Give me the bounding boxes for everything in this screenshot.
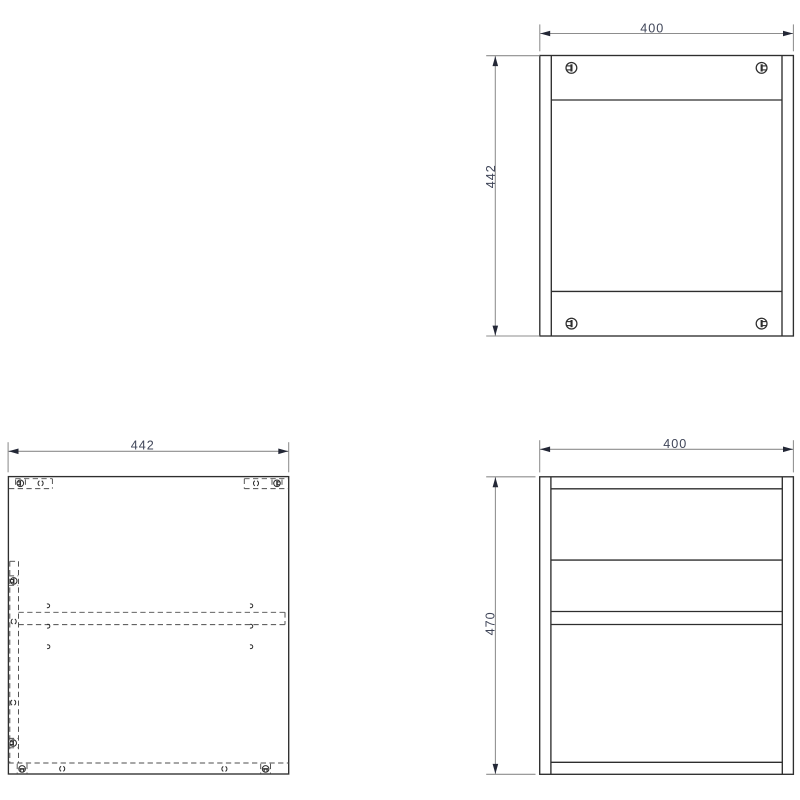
svg-text:400: 400	[663, 437, 687, 451]
svg-text:442: 442	[131, 439, 155, 453]
svg-text:470: 470	[484, 611, 498, 635]
svg-text:400: 400	[640, 22, 664, 36]
svg-text:442: 442	[484, 164, 498, 188]
